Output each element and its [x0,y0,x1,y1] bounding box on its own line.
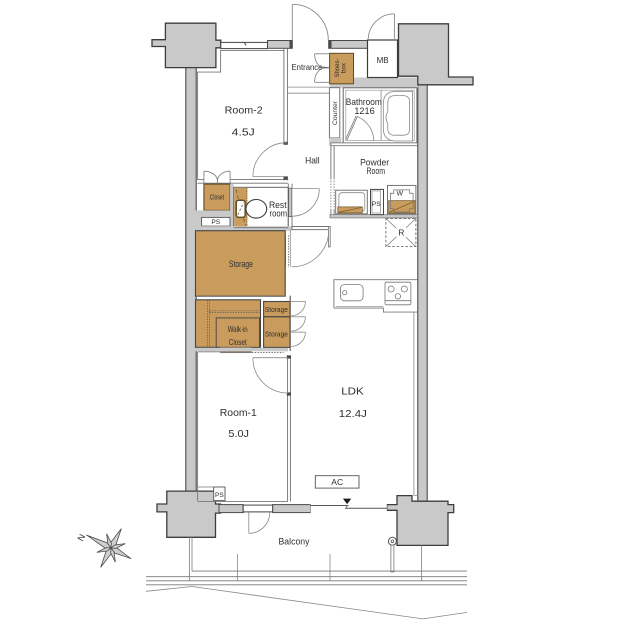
svg-text:Walk-in: Walk-in [228,325,248,334]
svg-text:4.5J: 4.5J [232,126,255,138]
svg-text:Hall: Hall [305,155,320,166]
svg-text:Counter: Counter [332,100,339,125]
svg-text:12.4J: 12.4J [339,408,367,420]
svg-text:PS: PS [211,219,220,226]
svg-text:Room-2: Room-2 [225,105,263,117]
svg-text:box: box [342,63,348,73]
svg-text:PS: PS [372,201,381,208]
svg-text:Room: Room [367,166,386,177]
svg-text:Closet: Closet [210,193,224,202]
svg-text:Storage: Storage [265,305,288,314]
svg-text:Balcony: Balcony [279,537,310,547]
svg-text:5.0J: 5.0J [228,428,249,440]
svg-text:Shoes-: Shoes- [335,59,341,78]
svg-text:PS: PS [215,492,224,499]
svg-text:AC: AC [331,477,343,487]
svg-text:W: W [396,190,403,197]
svg-text:Storage: Storage [265,330,288,339]
svg-text:Storage: Storage [229,259,253,269]
svg-text:Room-1: Room-1 [220,407,257,419]
svg-text:MB: MB [377,55,389,65]
svg-text:Closet: Closet [229,338,247,347]
svg-text:1216: 1216 [354,106,374,116]
svg-text:R: R [398,228,404,238]
svg-text:LDK: LDK [341,385,364,397]
svg-text:room: room [270,208,288,218]
